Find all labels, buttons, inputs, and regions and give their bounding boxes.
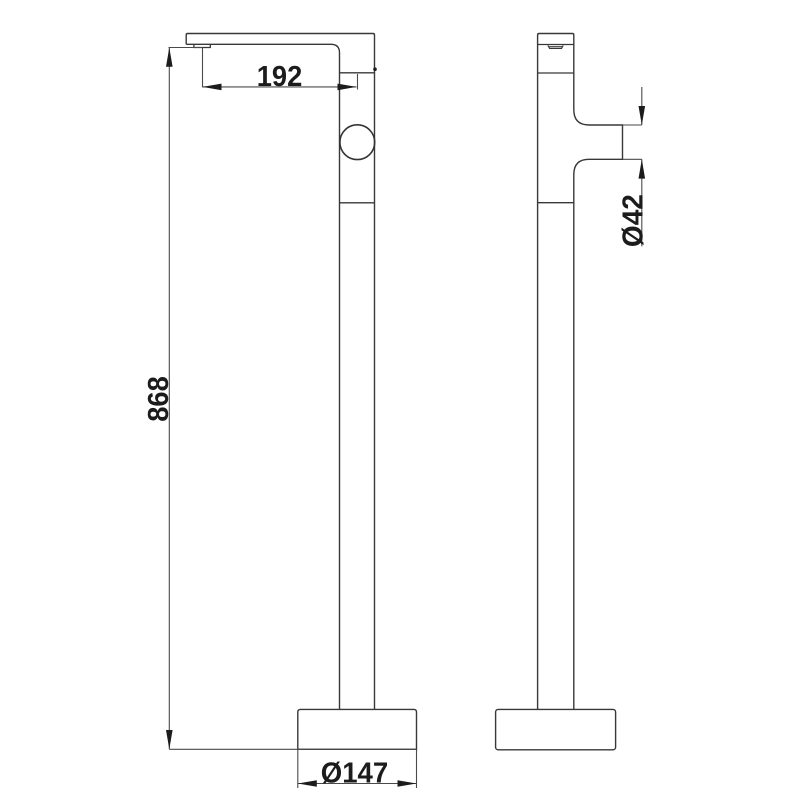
svg-text:192: 192 bbox=[257, 61, 303, 93]
svg-text:868: 868 bbox=[143, 376, 175, 422]
svg-text:Ø147: Ø147 bbox=[321, 758, 389, 790]
svg-text:Ø42: Ø42 bbox=[617, 194, 649, 247]
